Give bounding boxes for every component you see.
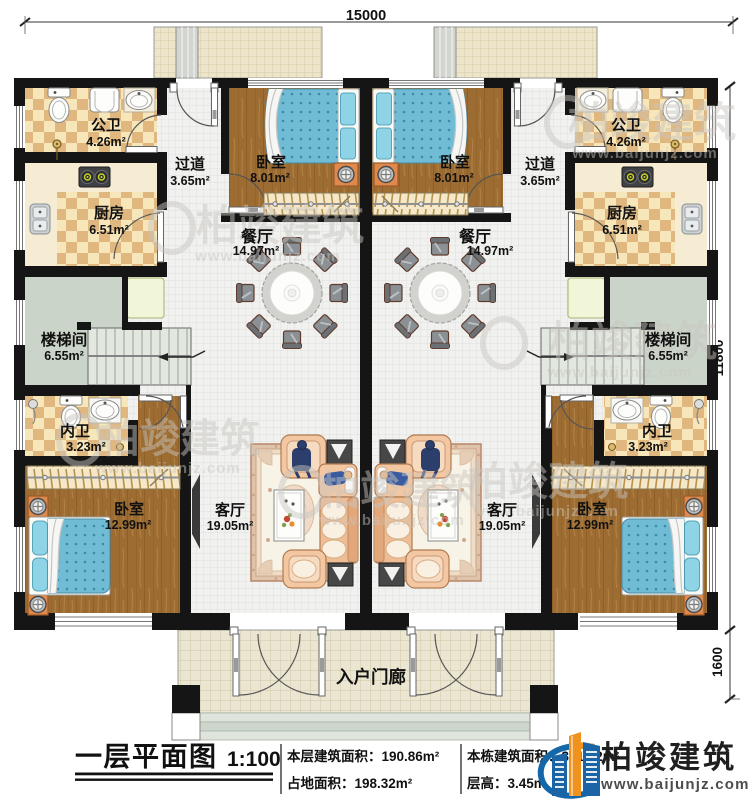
svg-text:4.26m²: 4.26m² — [86, 135, 126, 149]
svg-text:4.26m²: 4.26m² — [606, 135, 646, 149]
svg-text:3.23m²: 3.23m² — [66, 440, 106, 454]
svg-text:楼梯间: 楼梯间 — [645, 330, 692, 349]
svg-text:公卫: 公卫 — [611, 117, 641, 134]
svg-text:8.01m²: 8.01m² — [434, 171, 474, 185]
svg-text:柏竣建筑: 柏竣建筑 — [568, 99, 736, 146]
svg-text:8.01m²: 8.01m² — [250, 171, 290, 185]
svg-text:卧室: 卧室 — [256, 153, 286, 171]
svg-text:客厅: 客厅 — [214, 501, 245, 519]
svg-text:入户门廊: 入户门廊 — [336, 667, 406, 687]
svg-text:柏竣建筑: 柏竣建筑 — [320, 469, 480, 513]
svg-text:厨房: 厨房 — [94, 204, 124, 222]
svg-text:6.55m²: 6.55m² — [44, 349, 84, 363]
svg-text:12.99m²: 12.99m² — [567, 518, 614, 532]
svg-text:本层建筑面积：190.86m²: 本层建筑面积：190.86m² — [287, 748, 440, 764]
svg-text:6.51m²: 6.51m² — [602, 223, 642, 237]
svg-text:www.baijunjz.com: www.baijunjz.com — [546, 364, 692, 381]
svg-text:www.baijunjz.com: www.baijunjz.com — [318, 512, 464, 529]
svg-text:3.65m²: 3.65m² — [520, 174, 560, 188]
svg-text:柏竣建筑: 柏竣建筑 — [601, 740, 737, 775]
svg-text:柏竣建筑: 柏竣建筑 — [100, 417, 260, 461]
svg-text:6.51m²: 6.51m² — [89, 223, 129, 237]
svg-text:1600: 1600 — [710, 647, 725, 677]
svg-text:3.65m²: 3.65m² — [170, 174, 210, 188]
svg-text:12.99m²: 12.99m² — [105, 518, 152, 532]
svg-text:柏竣建筑: 柏竣建筑 — [468, 460, 628, 504]
svg-text:柏竣建筑: 柏竣建筑 — [196, 202, 364, 249]
svg-text:楼梯间: 楼梯间 — [41, 330, 88, 349]
svg-text:厨房: 厨房 — [607, 204, 637, 222]
svg-text:公卫: 公卫 — [91, 117, 121, 134]
svg-text:过道: 过道 — [525, 155, 555, 173]
svg-text:内卫: 内卫 — [60, 422, 90, 440]
svg-text:占地面积：198.32m²: 占地面积：198.32m² — [287, 775, 413, 791]
svg-text:www.baijunjz.com: www.baijunjz.com — [600, 776, 750, 793]
svg-text:层高：3.45m: 层高：3.45m — [467, 775, 546, 791]
svg-text:卧室: 卧室 — [577, 500, 607, 518]
svg-text:14.97m²: 14.97m² — [233, 244, 280, 258]
svg-text:内卫: 内卫 — [642, 422, 672, 440]
svg-text:6.55m²: 6.55m² — [648, 349, 688, 363]
svg-text:卧室: 卧室 — [440, 153, 470, 171]
svg-text:过道: 过道 — [175, 155, 205, 173]
svg-text:一层平面图: 一层平面图 — [75, 742, 218, 772]
svg-text:19.05m²: 19.05m² — [207, 519, 254, 533]
svg-text:19.05m²: 19.05m² — [479, 519, 526, 533]
svg-text:www.baijunjz.com: www.baijunjz.com — [94, 460, 240, 477]
svg-text:柏竣建筑: 柏竣建筑 — [549, 318, 717, 365]
svg-text:卧室: 卧室 — [114, 500, 144, 518]
svg-text:客厅: 客厅 — [486, 501, 517, 519]
svg-text:1:100: 1:100 — [227, 748, 281, 771]
svg-text:14.97m²: 14.97m² — [467, 244, 514, 258]
svg-text:3.23m²: 3.23m² — [628, 440, 668, 454]
svg-text:15000: 15000 — [346, 8, 386, 24]
